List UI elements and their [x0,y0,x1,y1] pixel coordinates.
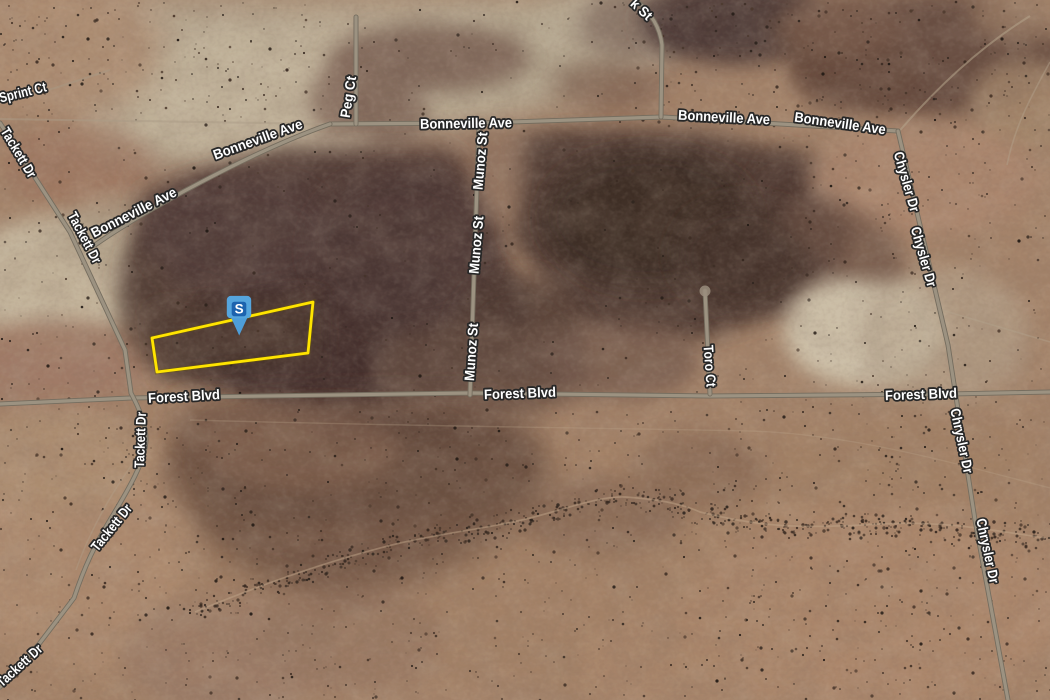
svg-text:Forest Blvd: Forest Blvd [484,384,557,403]
svg-text:Tackett Dr: Tackett Dr [131,411,149,468]
svg-text:Bonneville Ave: Bonneville Ave [420,114,512,132]
svg-text:S: S [235,302,244,317]
svg-text:Forest Blvd: Forest Blvd [885,385,958,404]
svg-text:Toro Ct: Toro Ct [701,344,720,387]
